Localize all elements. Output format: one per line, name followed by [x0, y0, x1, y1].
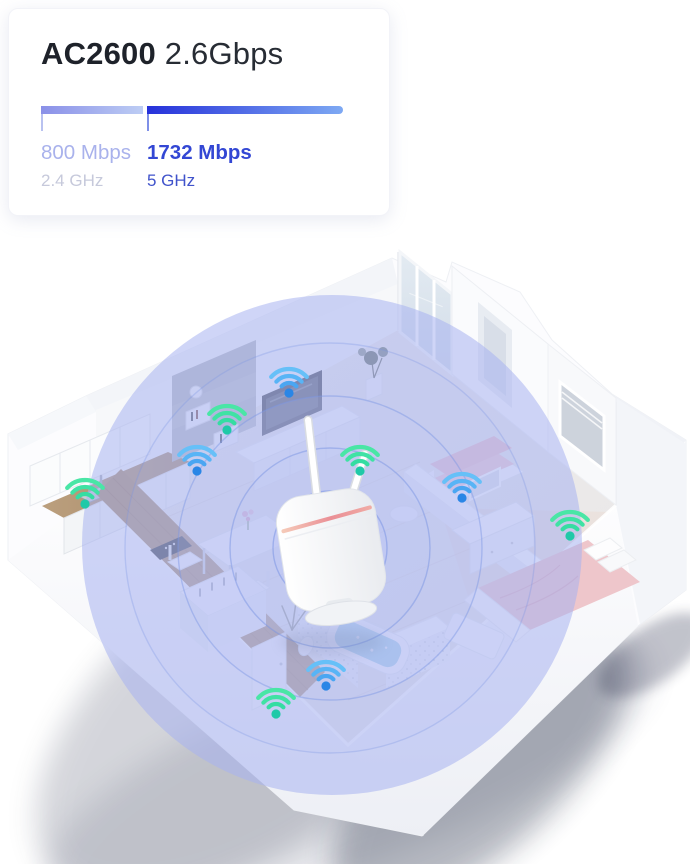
spec-card: AC2600 2.6Gbps 800 Mbps 2.4 GHz 1732 Mbp…	[8, 8, 390, 216]
band-5ghz-label: 1732 Mbps 5 GHz	[147, 141, 252, 191]
band-5ghz-tick	[147, 114, 149, 131]
total-speed: 2.6Gbps	[165, 36, 284, 71]
band-2_4ghz-tick	[41, 114, 43, 131]
band-labels: 800 Mbps 2.4 GHz 1732 Mbps 5 GHz	[41, 141, 343, 201]
band-5ghz-bar	[147, 106, 343, 114]
band-2_4ghz-label: 800 Mbps 2.4 GHz	[41, 141, 131, 191]
bandwidth-bar	[41, 106, 343, 114]
card-title: AC2600 2.6Gbps	[41, 35, 357, 73]
band-5ghz-speed: 1732 Mbps	[147, 141, 252, 165]
band-5ghz-freq: 5 GHz	[147, 171, 252, 191]
band-2_4ghz-freq: 2.4 GHz	[41, 171, 131, 191]
band-2_4ghz-speed: 800 Mbps	[41, 141, 131, 165]
router-model: AC2600	[41, 36, 156, 71]
band-2_4ghz-bar	[41, 106, 143, 114]
